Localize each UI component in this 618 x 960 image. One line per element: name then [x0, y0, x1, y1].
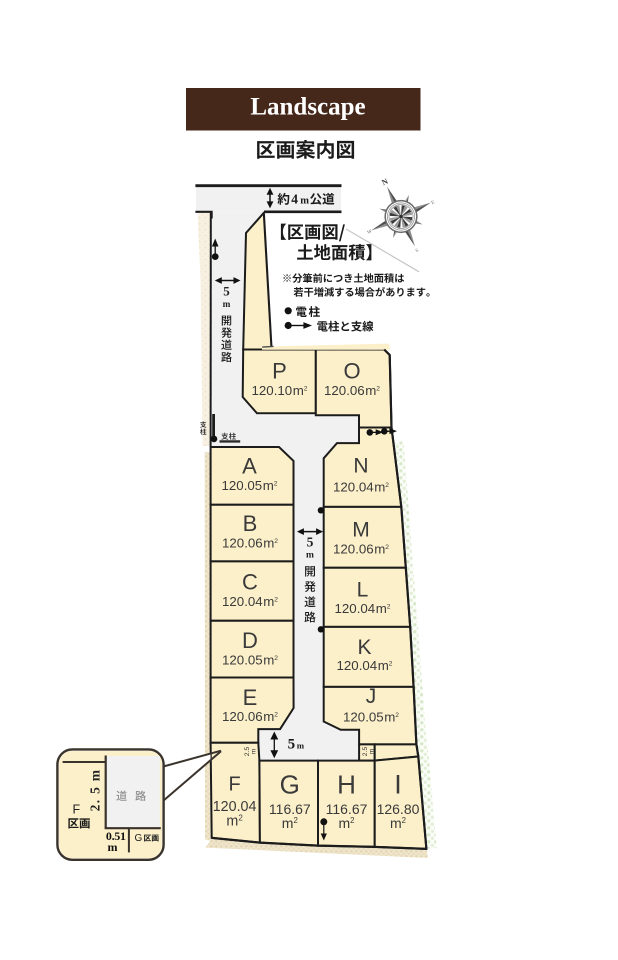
svg-text:120.06m2: 120.06m2	[333, 542, 389, 557]
svg-text:B: B	[243, 511, 258, 536]
svg-text:4: 4	[291, 192, 298, 207]
svg-text:F: F	[228, 774, 240, 796]
svg-text:N: N	[353, 455, 368, 478]
svg-text:120.04m2: 120.04m2	[337, 658, 393, 673]
svg-text:m: m	[300, 195, 309, 206]
svg-text:120.04m2: 120.04m2	[333, 479, 389, 494]
svg-text:K: K	[357, 636, 371, 659]
svg-text:E: E	[243, 685, 258, 710]
svg-text:120.06m2: 120.06m2	[324, 383, 380, 398]
svg-text:H: H	[337, 770, 356, 800]
svg-text:M: M	[352, 519, 370, 542]
svg-text:120.05m2: 120.05m2	[222, 652, 278, 667]
svg-text:I: I	[394, 770, 402, 800]
svg-text:P: P	[272, 359, 287, 384]
svg-text:120.06m2: 120.06m2	[222, 536, 278, 551]
svg-text:120.05m2: 120.05m2	[222, 478, 278, 493]
svg-text:2. 5 m: 2. 5 m	[88, 769, 103, 812]
svg-text:120.04m2: 120.04m2	[335, 601, 391, 616]
svg-text:O: O	[343, 359, 360, 384]
svg-text:m: m	[108, 840, 118, 854]
svg-text:L: L	[357, 579, 369, 602]
svg-text:Landscape: Landscape	[250, 94, 365, 121]
svg-text:120.10m2: 120.10m2	[252, 383, 308, 398]
svg-text:m: m	[297, 740, 305, 750]
svg-text:G: G	[280, 770, 300, 800]
svg-text:J: J	[366, 685, 377, 708]
svg-text:5: 5	[307, 534, 314, 549]
svg-text:5: 5	[288, 737, 296, 753]
svg-text:m: m	[223, 300, 231, 310]
svg-text:C: C	[242, 570, 258, 595]
svg-text:120.04m2: 120.04m2	[222, 594, 278, 609]
svg-text:120.05m2: 120.05m2	[343, 710, 399, 725]
svg-text:G: G	[135, 833, 143, 844]
svg-text:m: m	[251, 748, 258, 754]
svg-text:A: A	[242, 453, 257, 478]
svg-text:m: m	[306, 551, 314, 561]
svg-text:D: D	[242, 628, 258, 653]
svg-text:m: m	[369, 748, 376, 754]
svg-text:120.06m2: 120.06m2	[222, 709, 278, 724]
svg-text:F: F	[73, 803, 81, 817]
svg-text:5: 5	[223, 284, 230, 299]
